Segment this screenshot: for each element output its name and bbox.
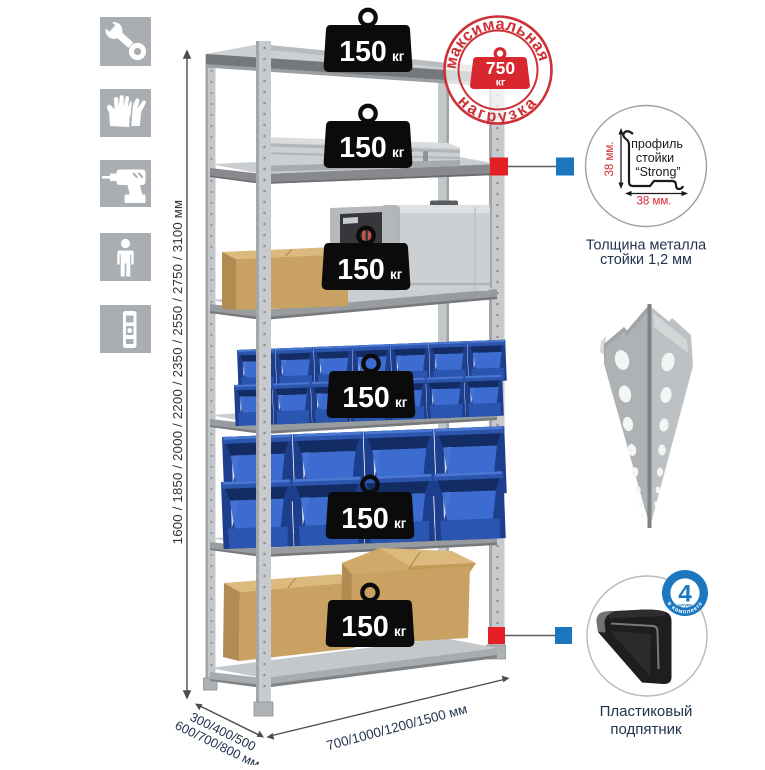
svg-text:1600 / 1850 / 2000 / 2200 / 23: 1600 / 1850 / 2000 / 2200 / 2350 / 2550 …	[170, 200, 185, 545]
svg-text:кг: кг	[496, 77, 506, 89]
svg-text:150: 150	[341, 503, 389, 535]
svg-text:кг: кг	[395, 395, 408, 410]
svg-text:штуки: штуки	[678, 603, 692, 608]
svg-text:150: 150	[339, 36, 387, 68]
svg-text:38 мм.: 38 мм.	[604, 142, 616, 177]
svg-text:Пластиковый: Пластиковый	[600, 703, 693, 720]
svg-text:“Strong”: “Strong”	[635, 165, 680, 179]
svg-text:кг: кг	[394, 516, 407, 531]
svg-text:750: 750	[486, 58, 515, 78]
svg-text:подпятник: подпятник	[610, 721, 682, 738]
svg-text:150: 150	[339, 132, 387, 164]
svg-text:38 мм.: 38 мм.	[637, 196, 672, 208]
svg-text:кг: кг	[394, 624, 407, 639]
svg-text:стойки 1,2 мм: стойки 1,2 мм	[600, 252, 692, 268]
svg-text:150: 150	[342, 382, 390, 414]
svg-text:стойки: стойки	[636, 151, 674, 165]
svg-text:профиль: профиль	[631, 137, 683, 151]
svg-text:кг: кг	[390, 267, 403, 282]
svg-text:150: 150	[337, 254, 385, 286]
svg-text:кг: кг	[392, 49, 405, 64]
svg-text:кг: кг	[392, 145, 405, 160]
svg-text:150: 150	[341, 611, 389, 643]
